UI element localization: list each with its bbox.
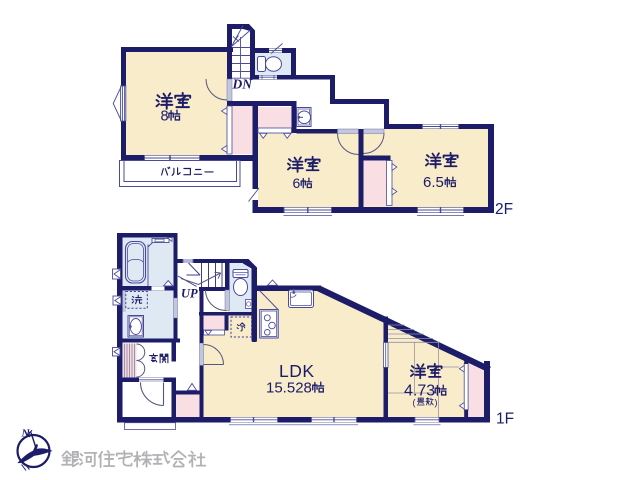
svg-text:(: (	[413, 398, 416, 408]
svg-text:15.528: 15.528	[266, 380, 312, 397]
svg-text:): )	[435, 398, 438, 408]
svg-text:6: 6	[293, 175, 301, 191]
svg-text:1F: 1F	[496, 411, 514, 428]
svg-text:6.5: 6.5	[423, 174, 444, 191]
svg-text:N: N	[21, 428, 31, 440]
svg-text:UP: UP	[181, 287, 198, 301]
svg-text:DN: DN	[232, 77, 254, 92]
svg-text:2F: 2F	[495, 201, 513, 218]
svg-text:4.73: 4.73	[404, 383, 435, 400]
svg-text:LDK: LDK	[279, 361, 315, 381]
svg-text:8: 8	[161, 109, 169, 125]
